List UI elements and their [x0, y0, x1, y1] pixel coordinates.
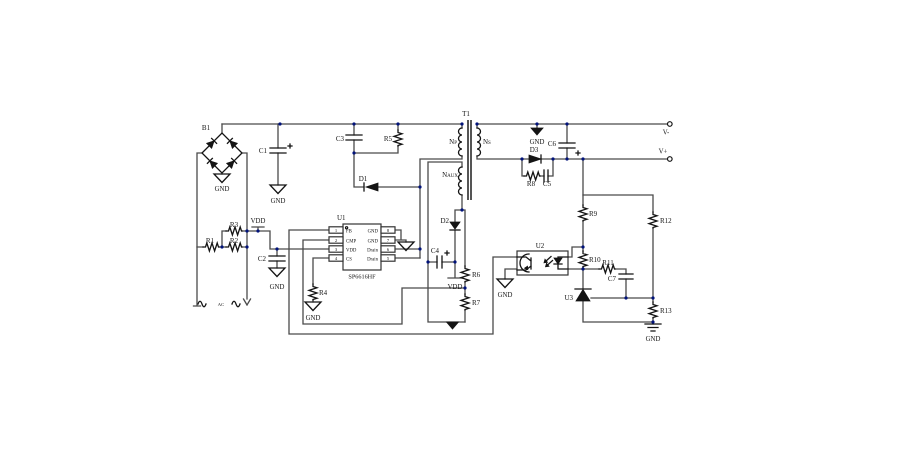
label-r10: R10: [589, 256, 601, 264]
label-part-number: SP6616HF: [348, 274, 376, 281]
label-b1: B1: [202, 124, 211, 132]
label-c3: C3: [336, 135, 345, 143]
resistor-r4: [305, 284, 321, 311]
resistor-r5: [394, 130, 402, 146]
label-gnd: GND: [215, 186, 230, 193]
winding-secondary: [477, 128, 481, 156]
pin-label-cmp: CMP: [346, 239, 356, 244]
label-u2: U2: [536, 242, 545, 250]
wires: [194, 124, 668, 334]
label-r7: R7: [472, 299, 481, 307]
optocoupler-u2: [517, 251, 568, 275]
label-r3: R3: [230, 221, 239, 229]
label-c5: C5: [543, 180, 552, 188]
shunt-regulator-u3: [575, 289, 591, 301]
label-r8: R8: [527, 180, 536, 188]
label-gnd: GND: [646, 336, 661, 343]
schematic-page: 1 2 3 4 8 7 6 5 FB CMP VDD CS GND GND Dr…: [0, 0, 900, 453]
terminal-v-plus: [668, 157, 673, 162]
pin-label-gnd: GND: [368, 229, 379, 234]
label-gnd: GND: [530, 139, 545, 146]
label-d2: D2: [440, 217, 449, 225]
pin-label-cs: CS: [346, 257, 352, 262]
label-ns: Ns: [483, 138, 491, 146]
label-u3: U3: [564, 294, 573, 302]
resistor-r10: [579, 251, 587, 267]
ground-icon: [214, 174, 230, 183]
resistor-r8: [524, 172, 540, 180]
pin-label-drain: Drain: [367, 248, 379, 253]
ground-icon: [305, 302, 321, 311]
diode-d3: [529, 155, 541, 163]
capacitor-c7: [619, 274, 633, 279]
label-gnd: GND: [498, 292, 513, 299]
ground-icon: [497, 279, 513, 288]
resistor-r7: [461, 294, 469, 310]
label-d1: D1: [359, 175, 368, 183]
label-vdd: VDD: [251, 218, 266, 225]
terminal-v-minus: [668, 122, 673, 127]
pin-label-drain: Drain: [367, 257, 379, 262]
earth-ground-icon: [645, 324, 661, 331]
pin-label-gnd: GND: [368, 239, 379, 244]
winding-aux: [459, 167, 463, 195]
label-c4: C4: [431, 247, 440, 255]
label-gnd: GND: [306, 315, 321, 322]
label-c6: C6: [548, 140, 557, 148]
label-v-plus: V+: [659, 149, 668, 156]
pin-label-fb: FB: [346, 229, 352, 234]
label-c7: C7: [608, 275, 617, 283]
bridge-rectifier-b1: [202, 133, 242, 183]
resistor-r13: [649, 302, 657, 318]
label-v-minus: V-: [663, 130, 670, 137]
label-naux: Naux: [442, 171, 458, 179]
label-d3: D3: [530, 146, 539, 154]
label-gnd: GND: [271, 198, 286, 205]
label-r12: R12: [660, 217, 672, 225]
label-gnd: GND: [270, 284, 285, 291]
label-r6: R6: [472, 271, 481, 279]
ground-icon: [270, 185, 286, 194]
resistor-r6: [461, 266, 469, 282]
label-r5: R5: [384, 135, 393, 143]
resistor-r12: [649, 212, 657, 228]
circuit-schematic: 1 2 3 4 8 7 6 5 FB CMP VDD CS GND GND Dr…: [0, 0, 900, 453]
pin-label-vdd: VDD: [346, 248, 357, 253]
label-r13: R13: [660, 307, 672, 315]
labels: B1 GND C1 GND R1 R3 R2 VDD C2 GND AC R4 …: [202, 110, 672, 343]
label-ac: AC: [218, 302, 224, 307]
ground-icon: [269, 268, 285, 277]
label-r11: R11: [602, 259, 614, 267]
label-r4: R4: [319, 289, 328, 297]
label-u1: U1: [337, 214, 346, 222]
winding-primary: [459, 128, 463, 156]
label-r1: R1: [206, 237, 215, 245]
capacitor-c3: [346, 135, 362, 140]
label-r9: R9: [589, 210, 598, 218]
label-c1: C1: [259, 147, 268, 155]
ground-icon: [447, 322, 459, 329]
label-c2: C2: [258, 255, 267, 263]
capacitor-c6: [559, 143, 580, 155]
diode-d1: [364, 183, 378, 191]
diode-d2: [450, 222, 460, 230]
label-np: Np: [449, 138, 457, 146]
label-vdd: VDD: [448, 284, 463, 291]
label-t1: T1: [462, 110, 470, 118]
label-r2: R2: [230, 237, 239, 245]
ground-icon: [531, 128, 543, 135]
transformer-t1: [459, 120, 481, 200]
capacitor-c1: [270, 144, 292, 194]
resistor-r9: [579, 205, 587, 221]
